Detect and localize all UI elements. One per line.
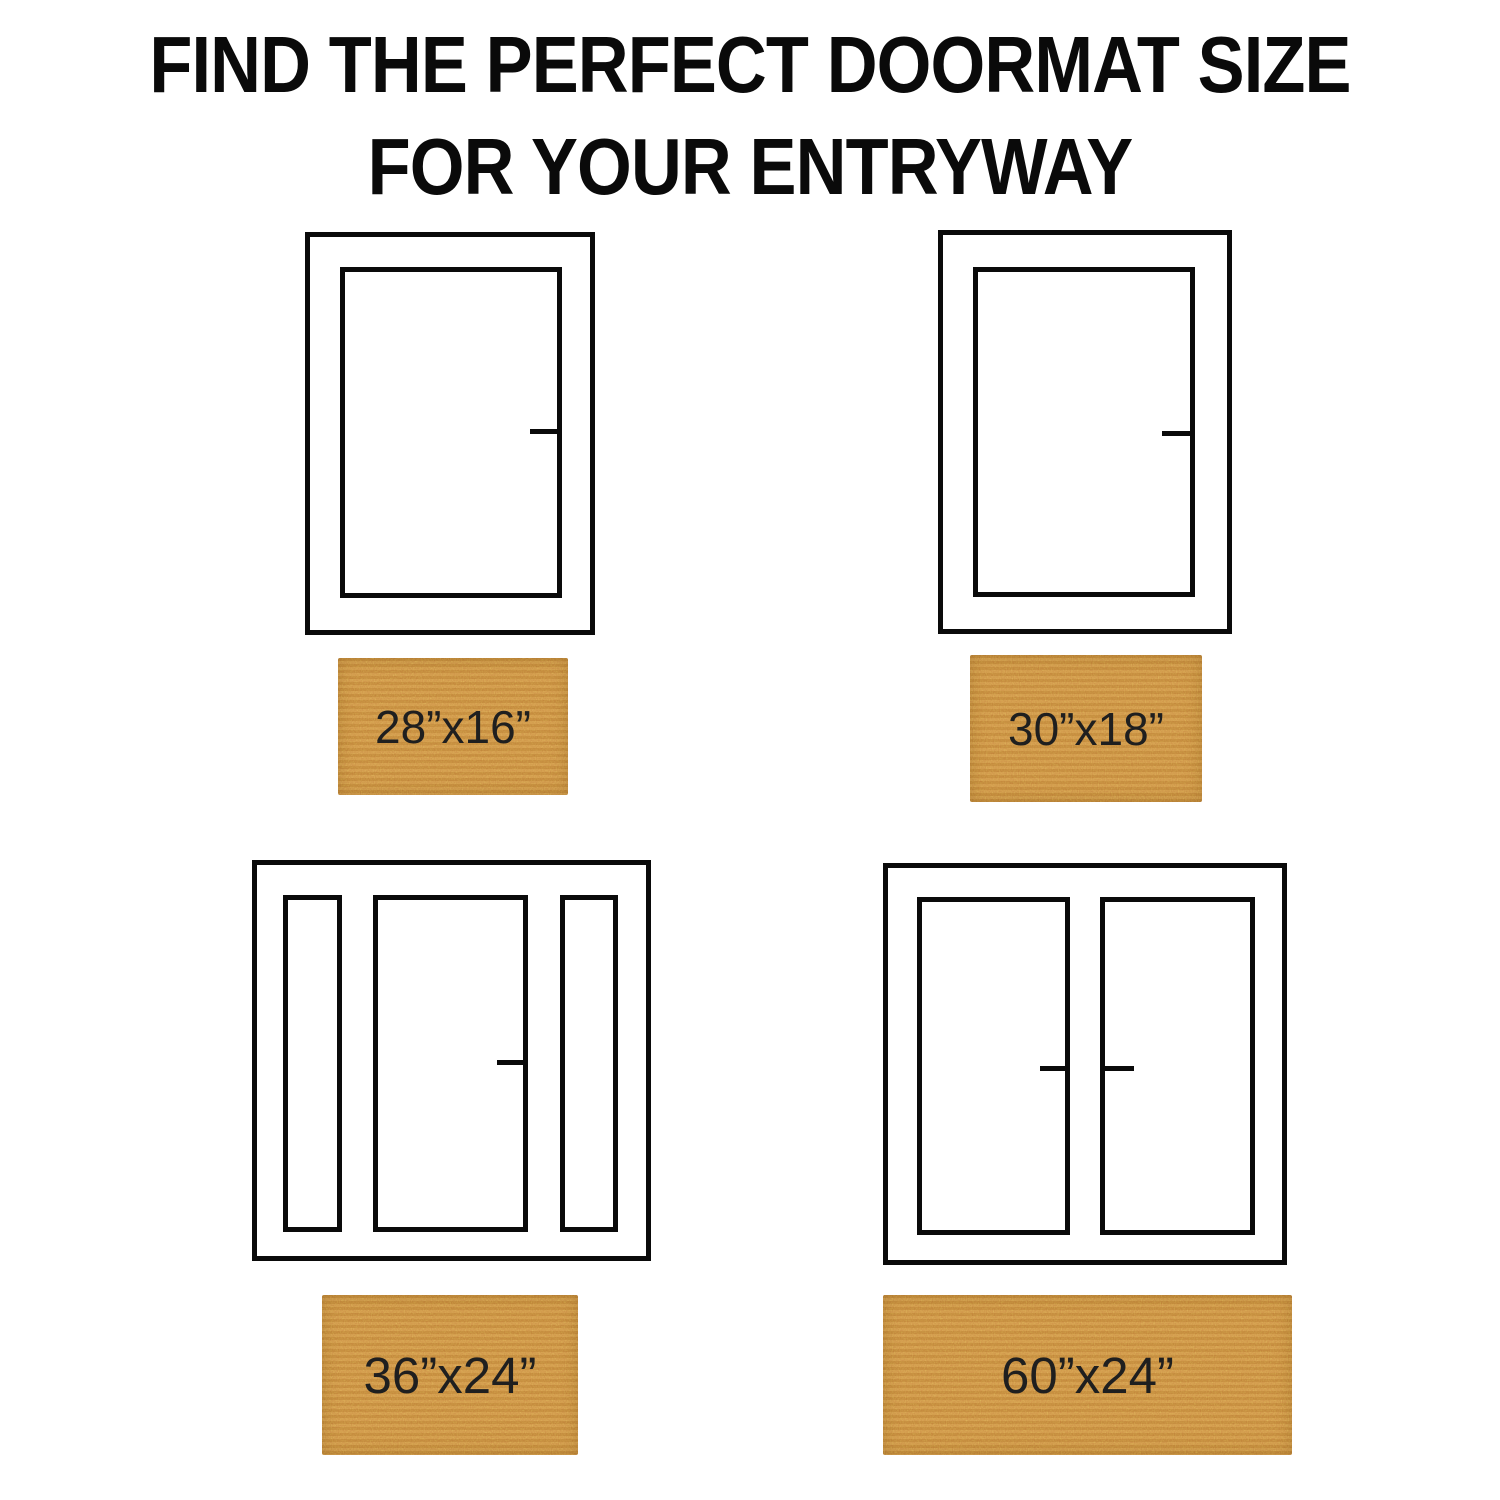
door-handle-right bbox=[1105, 1066, 1134, 1071]
door-handle bbox=[1162, 431, 1190, 436]
single-door-diagram-2 bbox=[938, 230, 1232, 634]
doormat-size-guide-infographic: FIND THE PERFECT DOORMAT SIZE FOR YOUR E… bbox=[0, 0, 1500, 1500]
door-panel bbox=[373, 895, 528, 1232]
doormat-30x18: 30”x18” bbox=[970, 655, 1202, 802]
sidelight-right bbox=[560, 895, 618, 1232]
door-panel bbox=[340, 267, 562, 598]
doormat-size-label: 60”x24” bbox=[1001, 1346, 1174, 1405]
door-handle bbox=[497, 1060, 523, 1065]
doormat-size-label: 36”x24” bbox=[364, 1346, 537, 1405]
door-panel bbox=[973, 267, 1195, 597]
door-handle-left bbox=[1040, 1066, 1065, 1071]
door-with-sidelights-diagram bbox=[252, 860, 651, 1261]
door-panel-right bbox=[1100, 897, 1255, 1235]
double-door-diagram bbox=[883, 863, 1287, 1265]
title-line-2: FOR YOUR ENTRYWAY bbox=[90, 116, 1410, 218]
doormat-size-label: 28”x16” bbox=[375, 700, 531, 754]
sidelight-left bbox=[283, 895, 342, 1232]
doormat-36x24: 36”x24” bbox=[322, 1295, 578, 1455]
single-door-diagram-1 bbox=[305, 232, 595, 635]
doormat-28x16: 28”x16” bbox=[338, 658, 568, 795]
door-handle bbox=[530, 429, 557, 434]
title-line-1: FIND THE PERFECT DOORMAT SIZE bbox=[90, 14, 1410, 116]
page-title: FIND THE PERFECT DOORMAT SIZE FOR YOUR E… bbox=[90, 14, 1410, 219]
doormat-size-label: 30”x18” bbox=[1008, 702, 1164, 756]
doormat-60x24: 60”x24” bbox=[883, 1295, 1292, 1455]
door-panel-left bbox=[917, 897, 1070, 1235]
